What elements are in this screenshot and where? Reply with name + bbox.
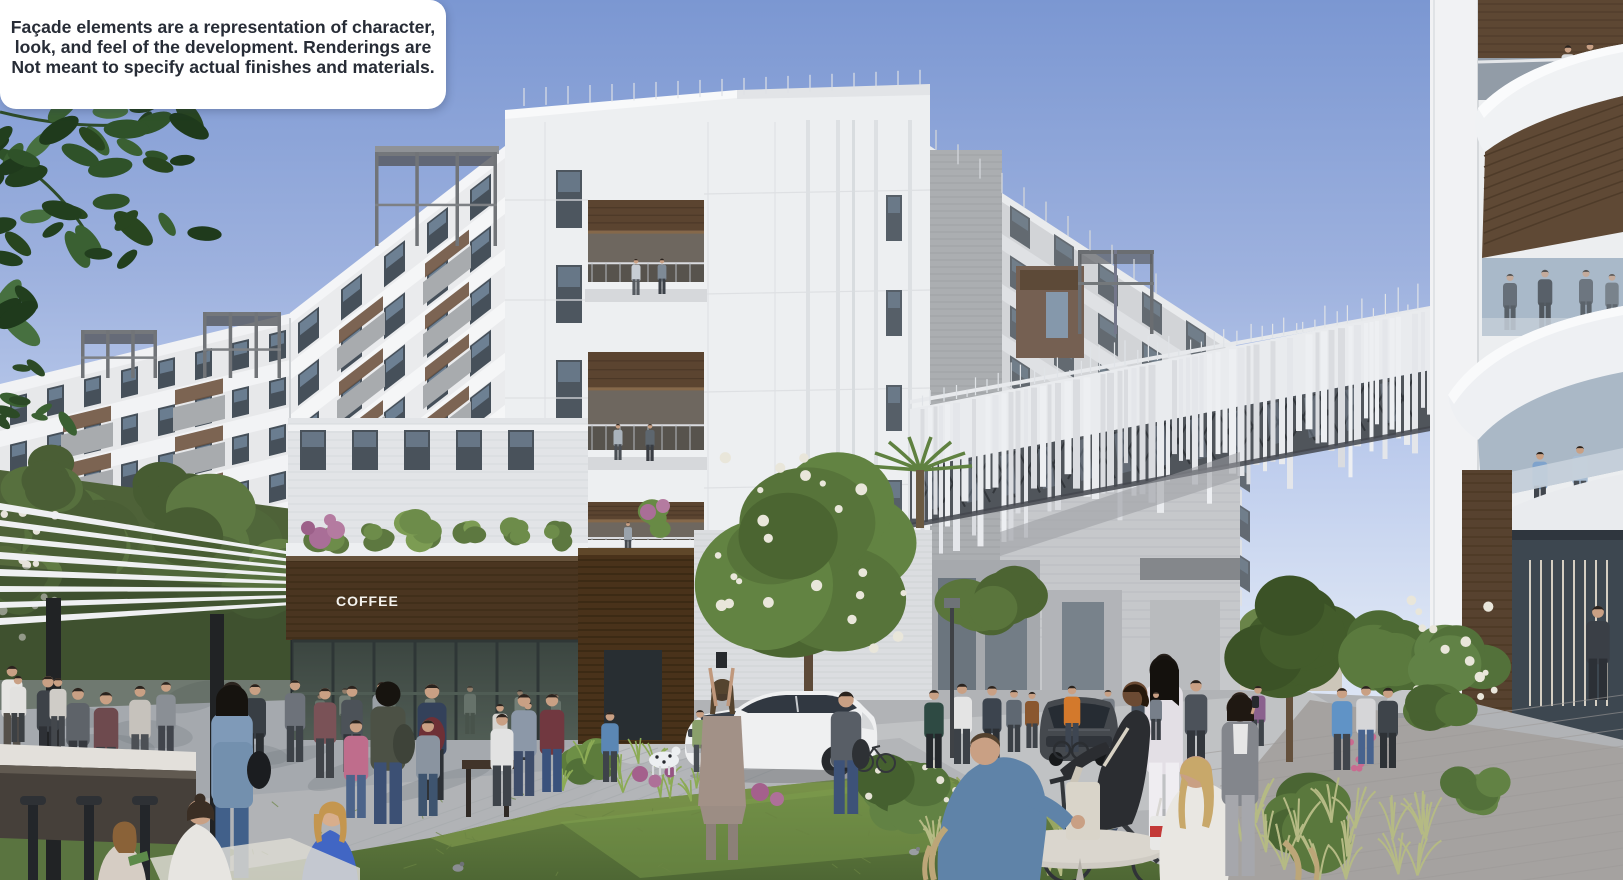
svg-text:COFFEE: COFFEE [336, 593, 399, 609]
